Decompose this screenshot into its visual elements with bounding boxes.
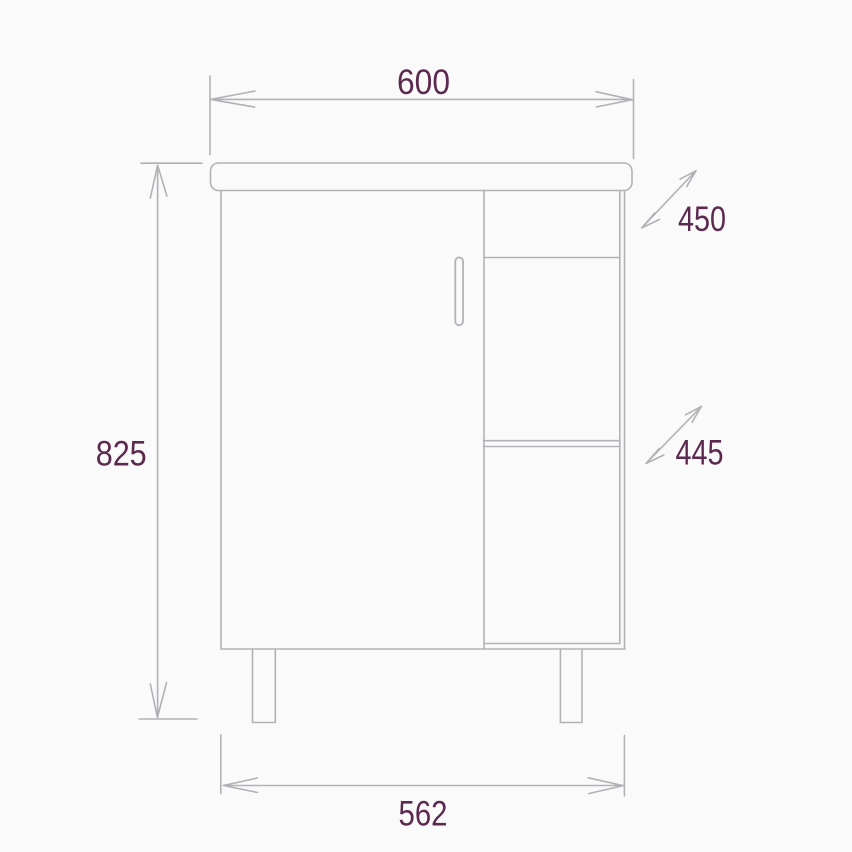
svg-text:445: 445 xyxy=(676,432,724,472)
svg-text:825: 825 xyxy=(96,433,147,473)
svg-text:562: 562 xyxy=(399,793,448,833)
svg-text:600: 600 xyxy=(397,62,450,102)
svg-text:450: 450 xyxy=(678,199,726,239)
